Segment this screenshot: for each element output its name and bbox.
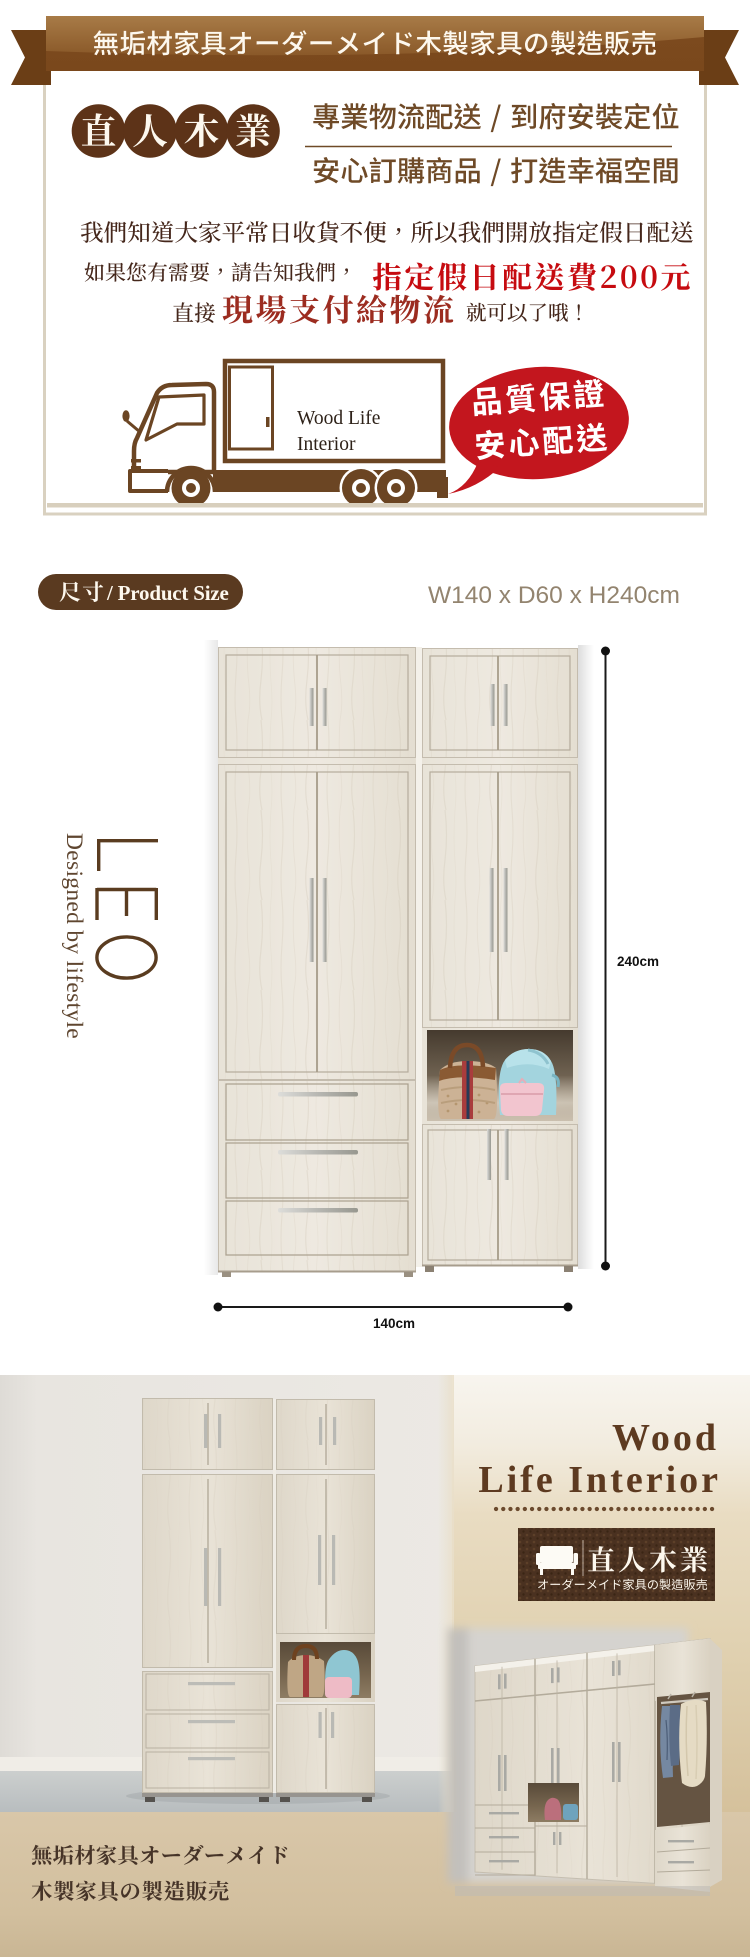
svg-text:/ Product Size: / Product Size xyxy=(106,581,229,605)
svg-text:140cm: 140cm xyxy=(373,1316,415,1331)
svg-text:Wood: Wood xyxy=(612,1417,719,1459)
svg-text:Designed by lifestyle: Designed by lifestyle xyxy=(61,833,87,1039)
svg-text:240cm: 240cm xyxy=(617,954,659,969)
svg-text:Life Interior: Life Interior xyxy=(478,1459,721,1501)
svg-text:Wood Life: Wood Life xyxy=(297,408,380,429)
svg-text:Interior: Interior xyxy=(297,434,356,455)
svg-text:W140 x D60 x H240cm: W140 x D60 x H240cm xyxy=(428,582,680,609)
